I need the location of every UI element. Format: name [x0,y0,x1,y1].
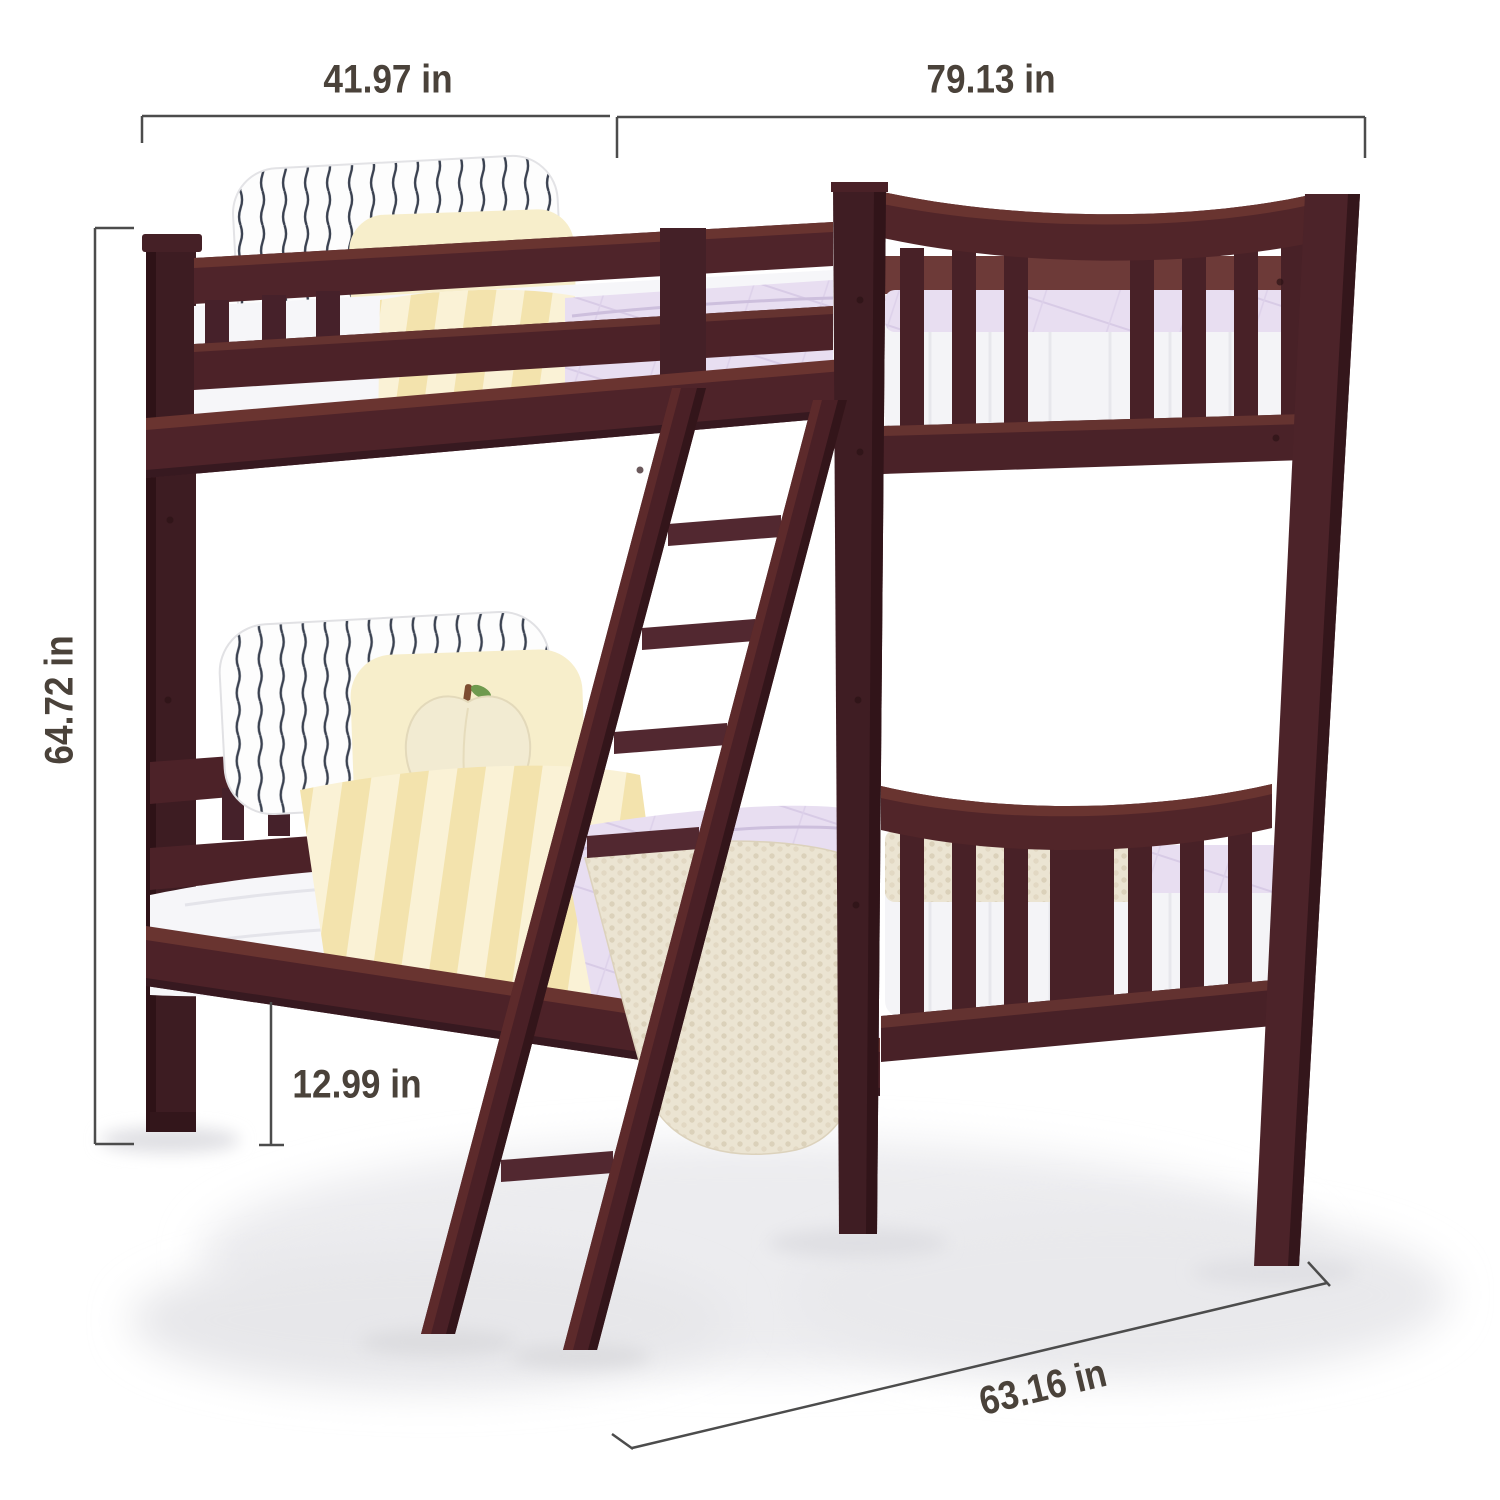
knit-blanket [585,841,859,1154]
ladder-rung-3 [614,723,727,754]
ladder-rung-2 [642,619,755,650]
lower-footboard [881,784,1282,1062]
bunk-bed-illustration [0,0,1500,1500]
dim-label-clearance: 12.99 in [292,1063,421,1108]
dim-line-length [617,117,1365,158]
upper-headboard [883,192,1307,474]
post-cap [142,234,202,252]
dim-label-width: 41.97 in [323,58,452,103]
front-left-post [142,234,202,1132]
dim-line-height [95,228,134,1144]
floor-shadow [100,1127,1450,1390]
ladder-rung-1 [668,515,781,546]
product-dimension-image: 41.97 in 79.13 in 64.72 in 12.99 in 63.1… [0,0,1500,1500]
dim-label-length: 79.13 in [926,58,1055,103]
dim-line-clearance [259,1002,284,1145]
upper-bunk-near-side [146,154,878,478]
upper-headboard-top-rail [883,192,1305,261]
dim-label-height: 64.72 in [38,635,83,764]
guardrail-mid-post [660,228,706,378]
footboard-top-rail [881,784,1272,850]
dim-line-width [142,116,610,143]
